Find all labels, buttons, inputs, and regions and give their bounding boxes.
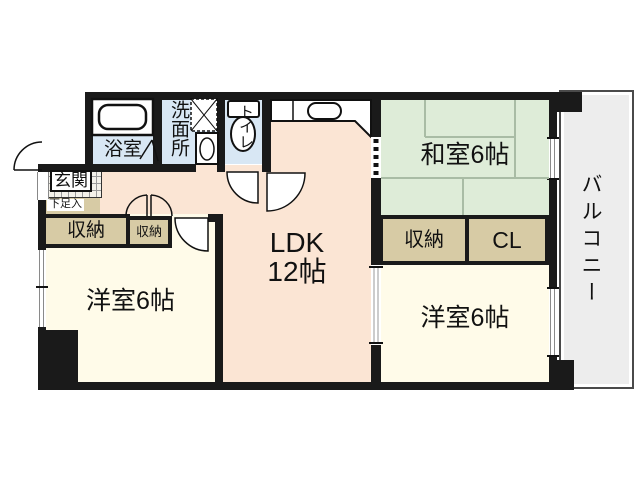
- toilet-label: トイレ: [236, 104, 253, 162]
- bath-label: 浴室: [93, 138, 153, 162]
- ldk-size-label: 12帖: [223, 257, 371, 286]
- pillar-top-right: [553, 92, 582, 112]
- shoe-storage-label: 下足入: [47, 199, 84, 211]
- western-room-left-label: 洋室6帖: [46, 286, 215, 316]
- window-icon: [549, 287, 557, 357]
- closet-box: CL: [465, 215, 549, 265]
- wall-washroom-toilet: [217, 100, 225, 172]
- storage-hall-small-label: 収納: [136, 225, 162, 239]
- balcony-label: バルコニー: [572, 140, 608, 340]
- western-room-right-label: 洋室6帖: [381, 303, 549, 333]
- wall-bottom: [38, 382, 574, 390]
- ldk-name-label: LDK: [223, 228, 371, 257]
- wall-toilet-kitchen: [262, 100, 271, 172]
- wall-top: [85, 92, 582, 100]
- kitchen-floor: [271, 100, 371, 172]
- pillar-bottom-right: [553, 360, 574, 390]
- washroom-label: 洗面所: [164, 100, 188, 166]
- storage-right-box: 収納: [379, 215, 469, 265]
- closet-label: CL: [492, 228, 521, 252]
- japanese-room-label: 和室6帖: [381, 140, 549, 170]
- storage-hall-large-box: 収納: [42, 214, 130, 248]
- storage-hall-small-box: 収納: [126, 216, 172, 248]
- storage-right-label: 収納: [404, 230, 444, 251]
- wall-ldk-western-left: [215, 214, 223, 382]
- entrance-label: 玄関: [50, 170, 92, 192]
- wall-bath-washroom: [153, 100, 162, 164]
- window-icon: [549, 137, 557, 180]
- pillar-bottom-left: [46, 330, 78, 382]
- storage-hall-large-label: 収納: [67, 221, 105, 241]
- window-icon: [38, 250, 46, 327]
- entrance-door-opening: [37, 172, 49, 200]
- wall-left-upper: [85, 92, 93, 172]
- floorplan-canvas: バルコニー 収納 収納 収納 CL: [0, 0, 640, 480]
